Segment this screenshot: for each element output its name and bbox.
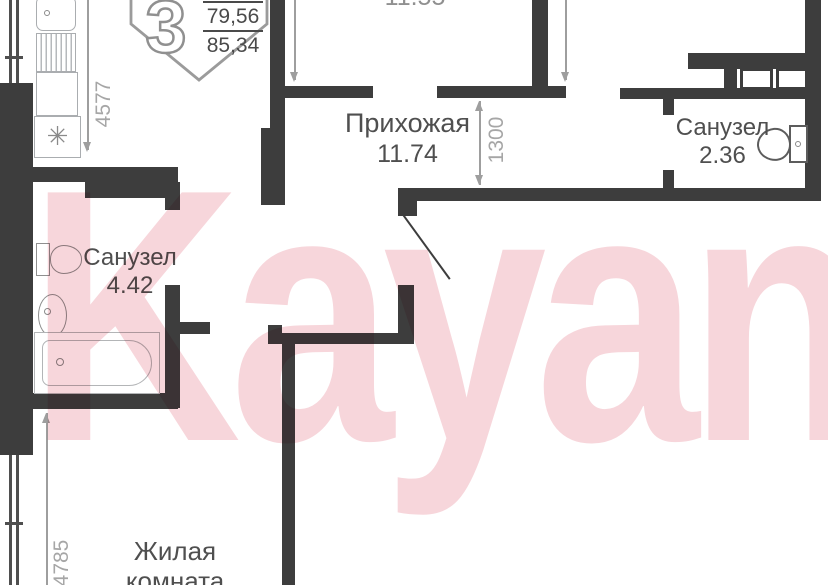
badge-areas: 79,56 85,34 [203,1,263,59]
wall-topright-band [688,53,818,69]
room-area-hallway: 11.74 [330,140,485,169]
kitchen-cabinet-icon [36,72,78,116]
sink-drain-dot [44,10,50,16]
wall-bath1-jamb [165,182,180,210]
bathtub-drain-dot [56,358,64,366]
dimension-line [294,0,296,80]
wall-bath1-right [165,285,180,408]
wall-living-divider [282,333,295,585]
window-icon [9,455,12,585]
toilet-tank-dot [795,141,801,147]
dimension-label: 4785 [50,538,74,585]
dimension-line [565,0,567,80]
window-icon [16,455,19,585]
arrow-down-icon [561,72,569,82]
window-icon [9,0,12,83]
washbasin-drain-dot [44,308,51,315]
washbasin-icon [38,294,67,337]
wall-bath1-bottom [33,393,178,409]
arrow-down-icon [290,72,298,82]
dimension-line [87,0,89,150]
window-tick [5,56,23,59]
window-tick [5,522,23,525]
wall-kitchen-hall-divider [270,0,285,205]
wall-bath2-jamb-bottom [663,170,674,189]
wall-hall-top-right [437,86,566,98]
badge-rooms-count: 3 [136,0,196,69]
wall-door-jamb [261,128,272,205]
wall-left-exterior [0,83,33,455]
dimension-label: 1300 [485,115,509,165]
room-name-bath-small: Санузел [650,114,795,142]
room-area-bath-large: 4.42 [60,272,200,300]
arrow-down-icon [83,142,91,152]
wall-closet-slot [724,69,737,89]
wall-bath2-jamb-top [663,88,674,115]
wall-top-divider [532,0,548,97]
dimension-line [46,413,48,585]
floor-plan: ✳ 4577 1300 4785 11.55 Прихожая 11.74 Са… [0,0,828,585]
stove-symbol: ✳ [34,121,81,152]
badge-area-upper: 79,56 [203,1,263,30]
drainboard-icon [36,33,76,72]
dimension-label: 4577 [92,79,116,129]
wall-central-horizontal [398,188,820,201]
window-icon [16,0,19,83]
door-swing-line [401,213,450,280]
wall-bath1-top-a [33,167,178,182]
arrow-up-icon [42,413,50,423]
wall-right-exterior [805,0,821,201]
appliance-box-icon [776,68,808,90]
badge-area-lower: 85,34 [203,30,263,59]
room-area-bath-small: 2.36 [650,142,795,170]
wall-hall-top-left [285,86,373,98]
room-name-living-1: Жилая [105,536,245,567]
room-name-bath-large: Санузел [60,244,200,272]
appliance-box-icon [740,68,773,90]
kitchen-sink-icon [36,0,76,31]
room-area-top: 11.55 [365,0,465,12]
room-name-hallway: Прихожая [330,108,485,139]
arrow-down-icon [475,175,483,185]
wall-bath1-stub [178,322,210,334]
room-name-living-2: комната [105,566,245,585]
toilet-tank-icon [36,243,50,276]
